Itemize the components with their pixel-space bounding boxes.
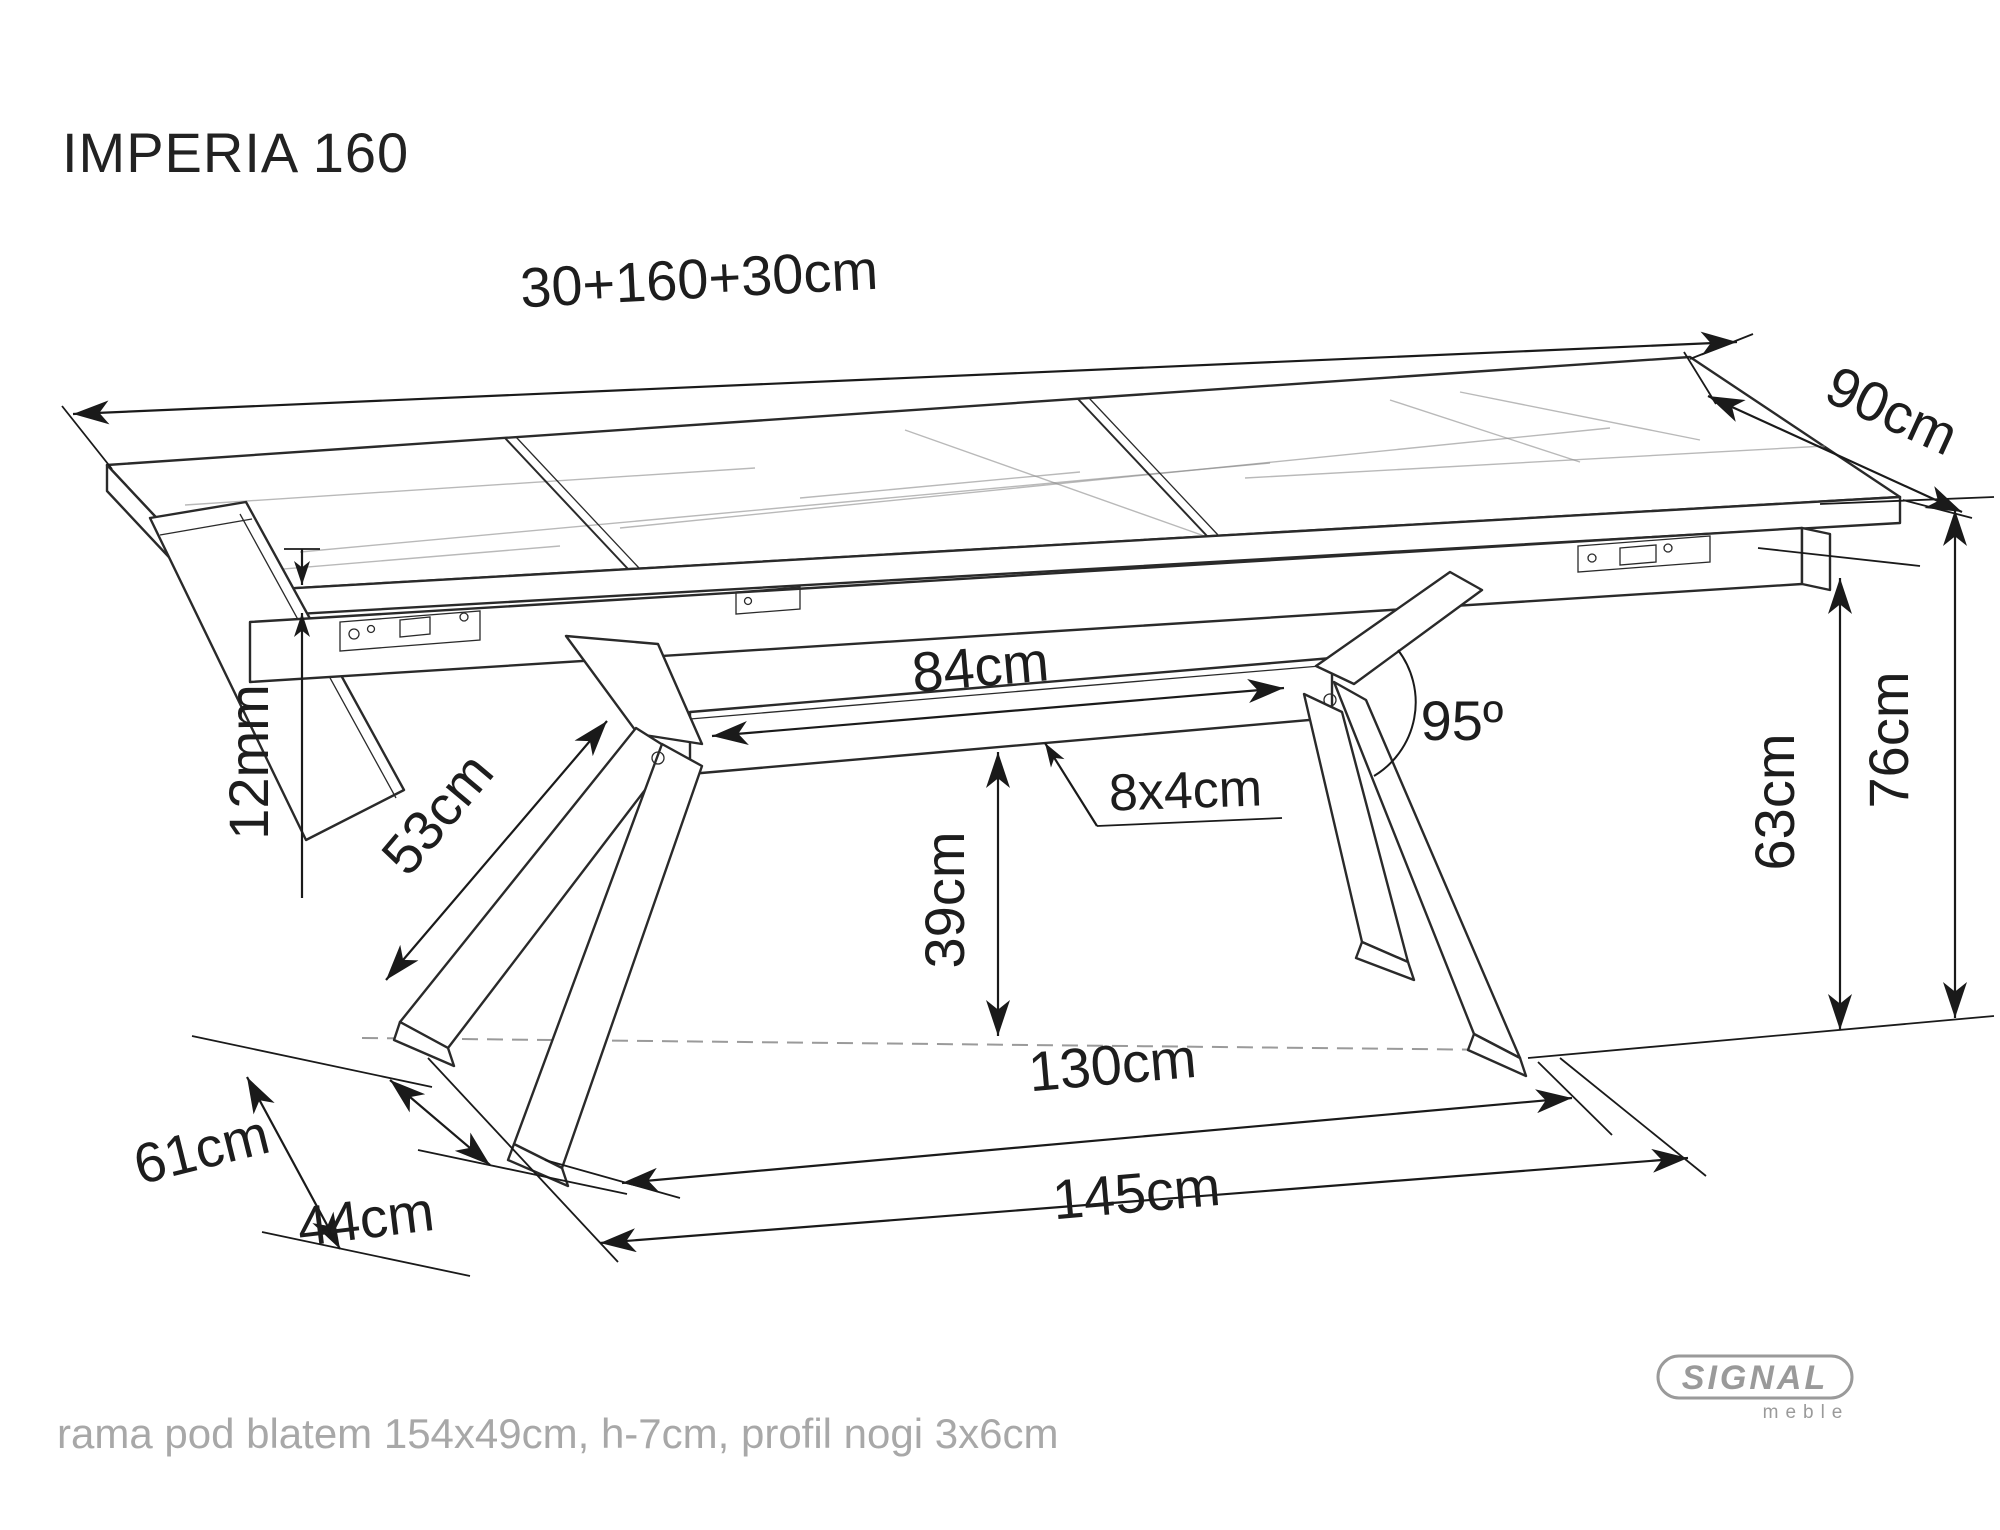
- dim-beam-floor-clearance: 39cm: [913, 752, 998, 1036]
- floor-dashed-line: [362, 1038, 1506, 1050]
- dim-top-thickness-label: 12mm: [217, 684, 280, 840]
- dim-feet-outer-span-label: 145cm: [1050, 1154, 1223, 1231]
- dim-total-length-label: 30+160+30cm: [519, 238, 880, 320]
- dim-foot-inner-depth-label: 44cm: [294, 1179, 438, 1258]
- spec-note: rama pod blatem 154x49cm, h-7cm, profil …: [57, 1410, 1058, 1457]
- table-dimension-diagram: 30+160+30cm 90cm 12mm 53cm 84cm 95º 8x4c…: [0, 0, 2000, 1530]
- dim-width-label: 90cm: [1817, 353, 1968, 467]
- page-title: IMPERIA 160: [62, 121, 409, 184]
- brand-logo-subtext: meble: [1763, 1402, 1850, 1423]
- dim-beam-profile-label: 8x4cm: [1108, 759, 1263, 822]
- dim-beam-floor-clearance-label: 39cm: [913, 832, 976, 969]
- dim-foot-depth-label: 61cm: [127, 1102, 275, 1196]
- dim-leg-angle: 95º: [1374, 650, 1503, 776]
- dim-leg-angle-label: 95º: [1421, 689, 1504, 752]
- right-leg-assembly: [1304, 572, 1526, 1076]
- technical-drawing-sheet: 30+160+30cm 90cm 12mm 53cm 84cm 95º 8x4c…: [0, 0, 2000, 1530]
- dim-table-height-label: 76cm: [1857, 672, 1920, 809]
- brand-logo-text: SIGNAL: [1682, 1359, 1828, 1397]
- brand-logo: SIGNAL meble: [1658, 1356, 1852, 1423]
- dim-beam-length-label: 84cm: [909, 629, 1051, 704]
- left-leg-assembly: [394, 636, 702, 1186]
- dim-beam-profile: 8x4cm: [1045, 743, 1282, 826]
- dim-underframe-height-label: 63cm: [1743, 734, 1806, 871]
- dim-feet-inner-span-label: 130cm: [1026, 1026, 1199, 1103]
